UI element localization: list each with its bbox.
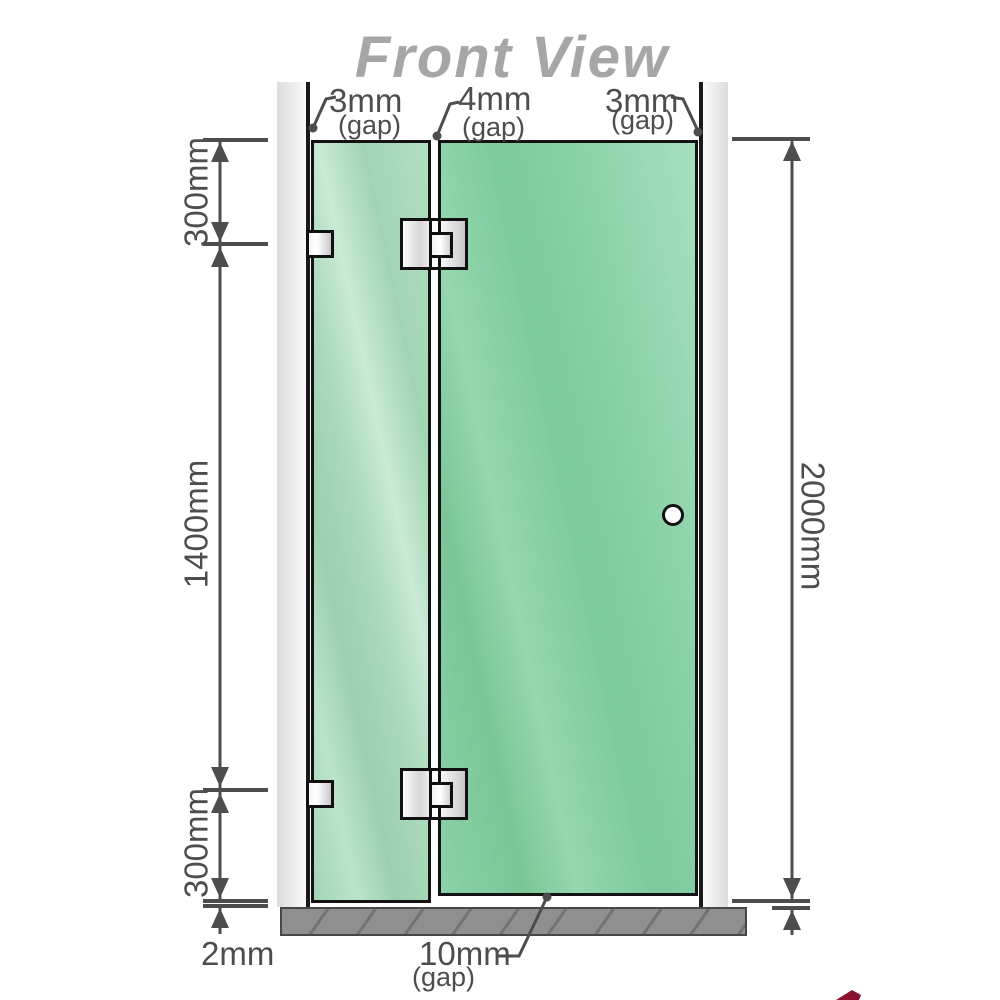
right-wall [703,82,728,907]
dim-300mm-top-label: 300mm [180,137,213,247]
gap-4mm-note: (gap) [462,114,525,141]
dim-2000mm-label: 2000mm [797,462,830,590]
front-view-diagram: Front View [0,0,1000,1000]
floor-base [280,907,747,936]
gap-10mm-note: (gap) [412,964,475,991]
gap-3mm-left-note: (gap) [338,112,401,139]
gap-3mm-right-note: (gap) [611,107,674,134]
door-glass-panel [438,140,698,896]
dim-1400mm-label: 1400mm [180,460,213,588]
gap-4mm-label: 4mm [458,82,531,115]
dim-300mm-bottom-label: 300mm [180,788,213,898]
watermark-red-mark [836,990,861,1000]
wall-bracket-top [306,230,334,258]
door-handle-knob [662,504,684,526]
wall-bracket-bottom [306,780,334,808]
dim-2mm-label: 2mm [201,937,274,970]
glass-hinge-bottom-clamp [429,782,453,808]
right-wall-edge-line [699,82,703,907]
left-wall [277,82,306,907]
glass-hinge-top-clamp [429,232,453,258]
